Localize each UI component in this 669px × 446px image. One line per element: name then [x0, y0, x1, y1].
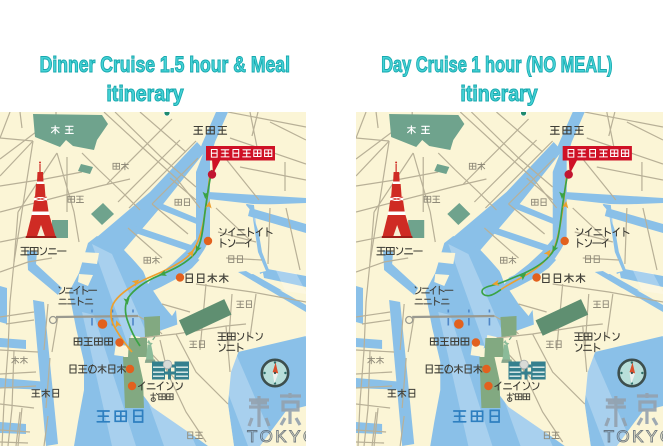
svg-text:TOKYO: TOKYO: [247, 427, 306, 446]
svg-text:TOKYO: TOKYO: [604, 427, 663, 446]
